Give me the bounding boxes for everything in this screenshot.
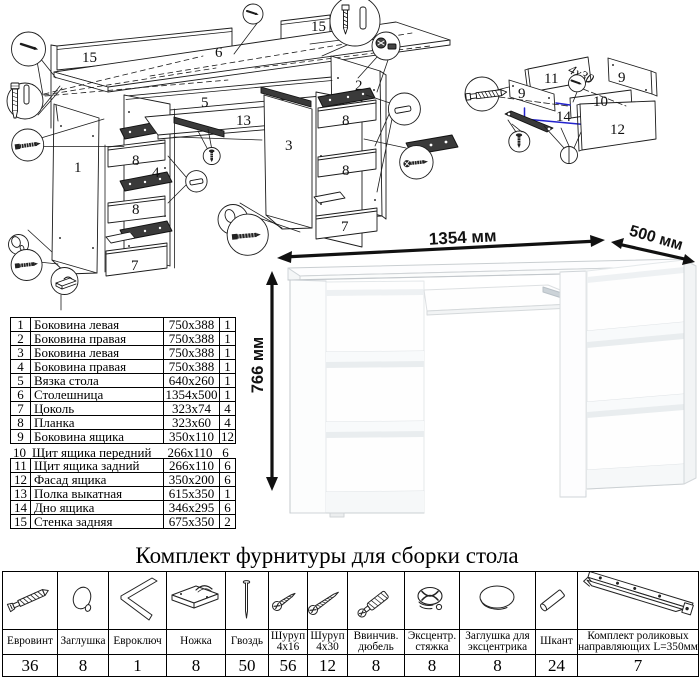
- svg-text:8: 8: [132, 202, 140, 218]
- svg-text:15: 15: [82, 50, 97, 66]
- svg-text:4: 4: [152, 165, 160, 181]
- svg-text:1: 1: [74, 160, 82, 176]
- svg-text:1354 мм: 1354 мм: [428, 226, 497, 249]
- svg-text:11: 11: [544, 71, 558, 87]
- svg-text:8: 8: [342, 113, 350, 129]
- svg-text:10: 10: [593, 94, 608, 110]
- svg-text:8: 8: [132, 153, 140, 169]
- svg-text:7: 7: [341, 219, 349, 235]
- svg-text:7: 7: [131, 258, 139, 274]
- svg-text:766 мм: 766 мм: [249, 337, 267, 394]
- svg-text:9: 9: [618, 70, 626, 86]
- svg-text:3: 3: [285, 138, 293, 154]
- svg-text:12: 12: [610, 122, 625, 138]
- svg-text:14: 14: [556, 109, 572, 125]
- svg-text:13: 13: [236, 113, 251, 129]
- svg-text:5: 5: [201, 95, 209, 111]
- svg-text:8: 8: [342, 163, 350, 179]
- svg-text:6: 6: [215, 45, 223, 61]
